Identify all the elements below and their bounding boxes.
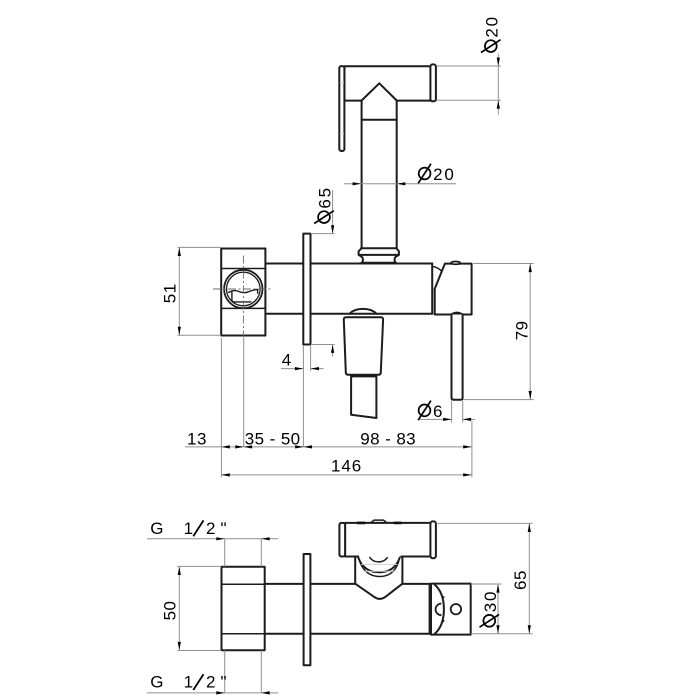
svg-text:6: 6	[433, 402, 442, 421]
svg-text:35 - 50: 35 - 50	[245, 429, 301, 448]
svg-text:20: 20	[433, 165, 456, 184]
svg-text:G12": G12"	[150, 519, 226, 538]
svg-text:65: 65	[511, 570, 530, 590]
svg-text:13: 13	[187, 429, 207, 448]
svg-text:4: 4	[282, 351, 291, 370]
svg-text:51: 51	[161, 283, 180, 303]
svg-text:146: 146	[331, 456, 362, 475]
svg-text:G12": G12"	[150, 673, 226, 692]
svg-text:50: 50	[161, 600, 180, 620]
svg-text:98 - 83: 98 - 83	[360, 429, 416, 448]
svg-text:20: 20	[482, 15, 501, 38]
svg-text:65: 65	[316, 186, 335, 209]
svg-text:79: 79	[512, 320, 531, 340]
svg-text:30: 30	[481, 590, 500, 613]
